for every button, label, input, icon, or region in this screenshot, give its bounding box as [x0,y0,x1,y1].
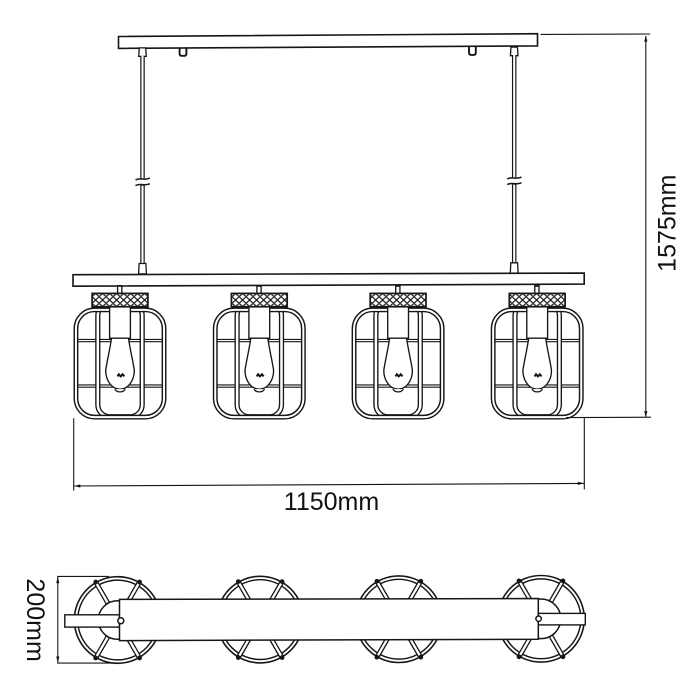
svg-text:200mm: 200mm [21,578,49,661]
svg-text:1150mm: 1150mm [284,488,379,516]
svg-text:1575mm: 1575mm [654,175,682,272]
